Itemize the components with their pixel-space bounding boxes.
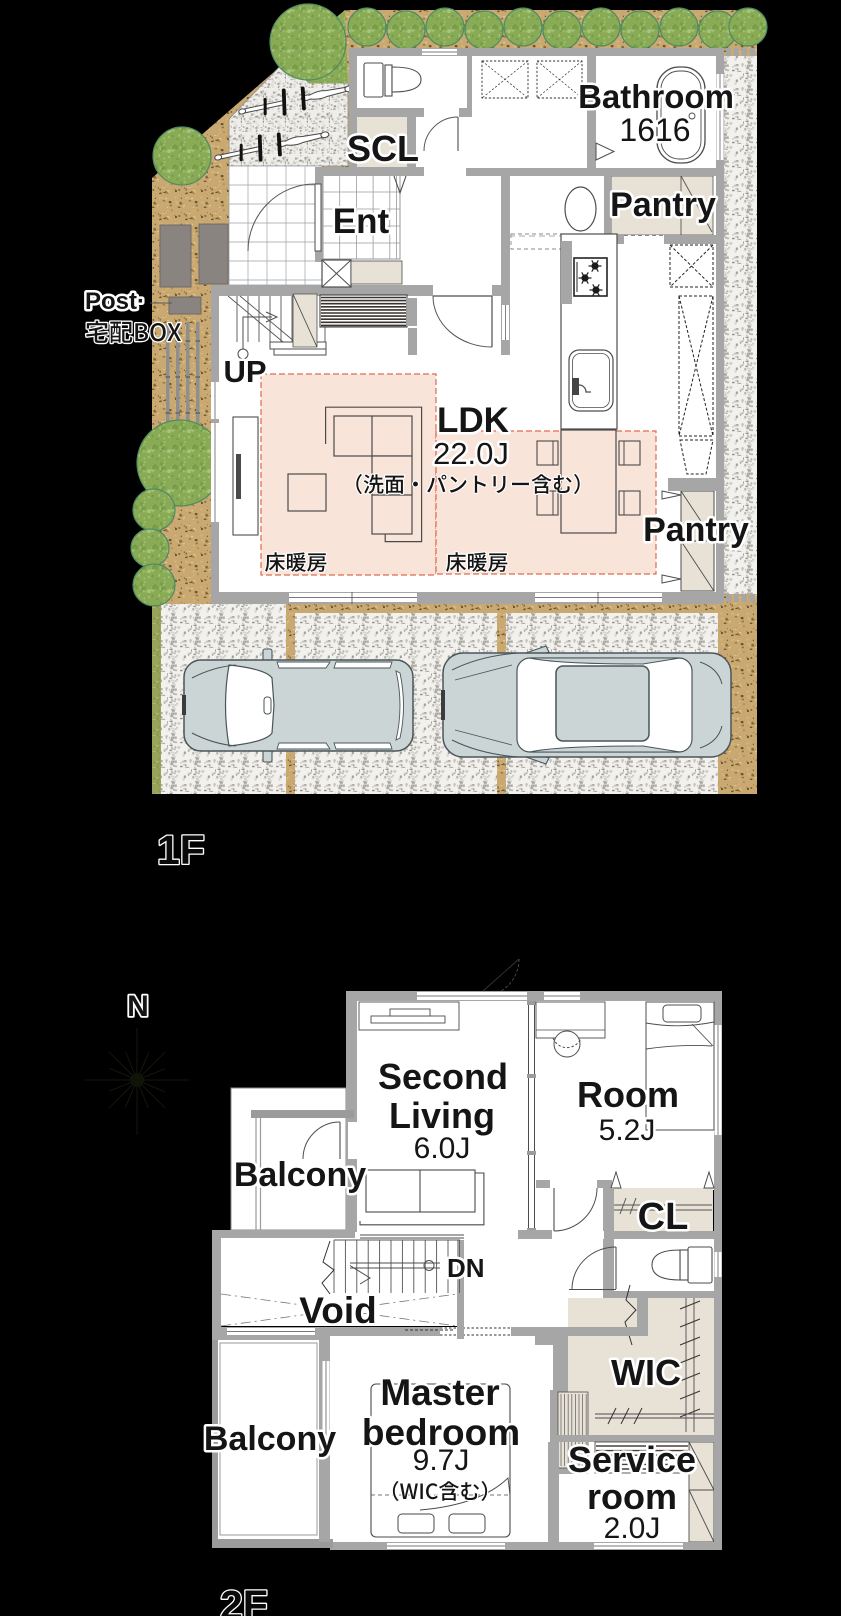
svg-text:room: room: [587, 1476, 677, 1517]
svg-text:22.0J: 22.0J: [433, 436, 509, 471]
svg-text:Service: Service: [568, 1439, 696, 1480]
svg-text:SCL: SCL: [347, 128, 419, 169]
svg-text:Second: Second: [378, 1056, 508, 1097]
svg-text:DN: DN: [447, 1253, 485, 1283]
svg-text:Balcony: Balcony: [204, 1420, 336, 1458]
svg-text:5.2J: 5.2J: [599, 1114, 656, 1147]
svg-text:WIC: WIC: [611, 1352, 681, 1393]
svg-text:UP: UP: [223, 354, 266, 389]
svg-text:Bathroom: Bathroom: [578, 78, 734, 115]
svg-text:Master: Master: [380, 1372, 499, 1413]
svg-text:2.0J: 2.0J: [604, 1512, 661, 1545]
svg-text:Living: Living: [389, 1095, 495, 1136]
svg-text:9.7J: 9.7J: [413, 1444, 470, 1477]
svg-text:6.0J: 6.0J: [414, 1132, 471, 1165]
svg-text:2F: 2F: [220, 1582, 268, 1616]
svg-text:Ent: Ent: [333, 202, 390, 241]
svg-text:1616: 1616: [619, 112, 690, 148]
svg-text:Pantry: Pantry: [610, 186, 716, 224]
svg-text:1F: 1F: [157, 827, 205, 873]
svg-text:Room: Room: [577, 1074, 679, 1115]
svg-text:Pantry: Pantry: [643, 511, 749, 549]
svg-text:Void: Void: [299, 1290, 376, 1331]
svg-text:N: N: [127, 990, 149, 1023]
svg-text:Post·: Post·: [85, 288, 145, 315]
svg-text:LDK: LDK: [437, 401, 509, 440]
svg-text:CL: CL: [638, 1196, 689, 1238]
svg-text:Balcony: Balcony: [234, 1156, 366, 1194]
